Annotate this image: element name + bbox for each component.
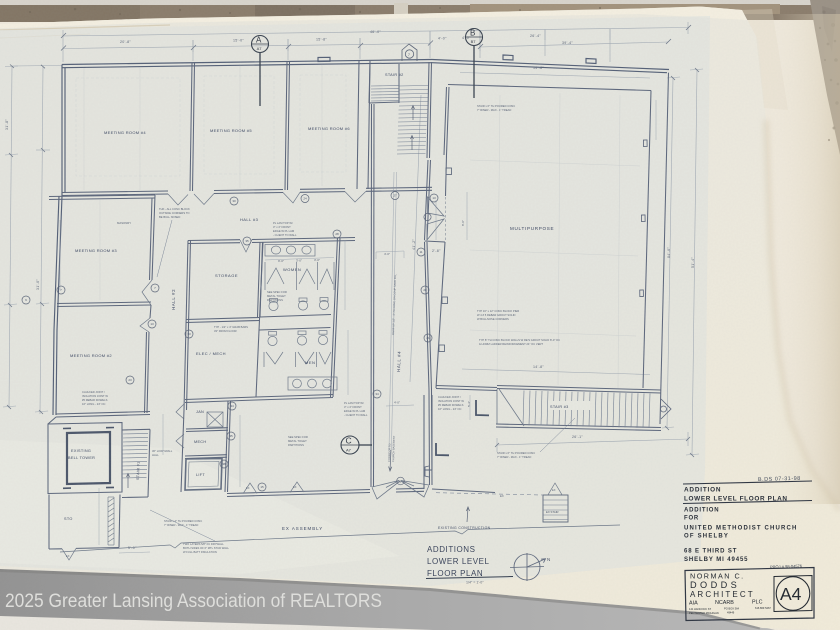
svg-text:2025 Greater Lansing Associati: 2025 Greater Lansing Association of REAL… <box>5 591 382 612</box>
